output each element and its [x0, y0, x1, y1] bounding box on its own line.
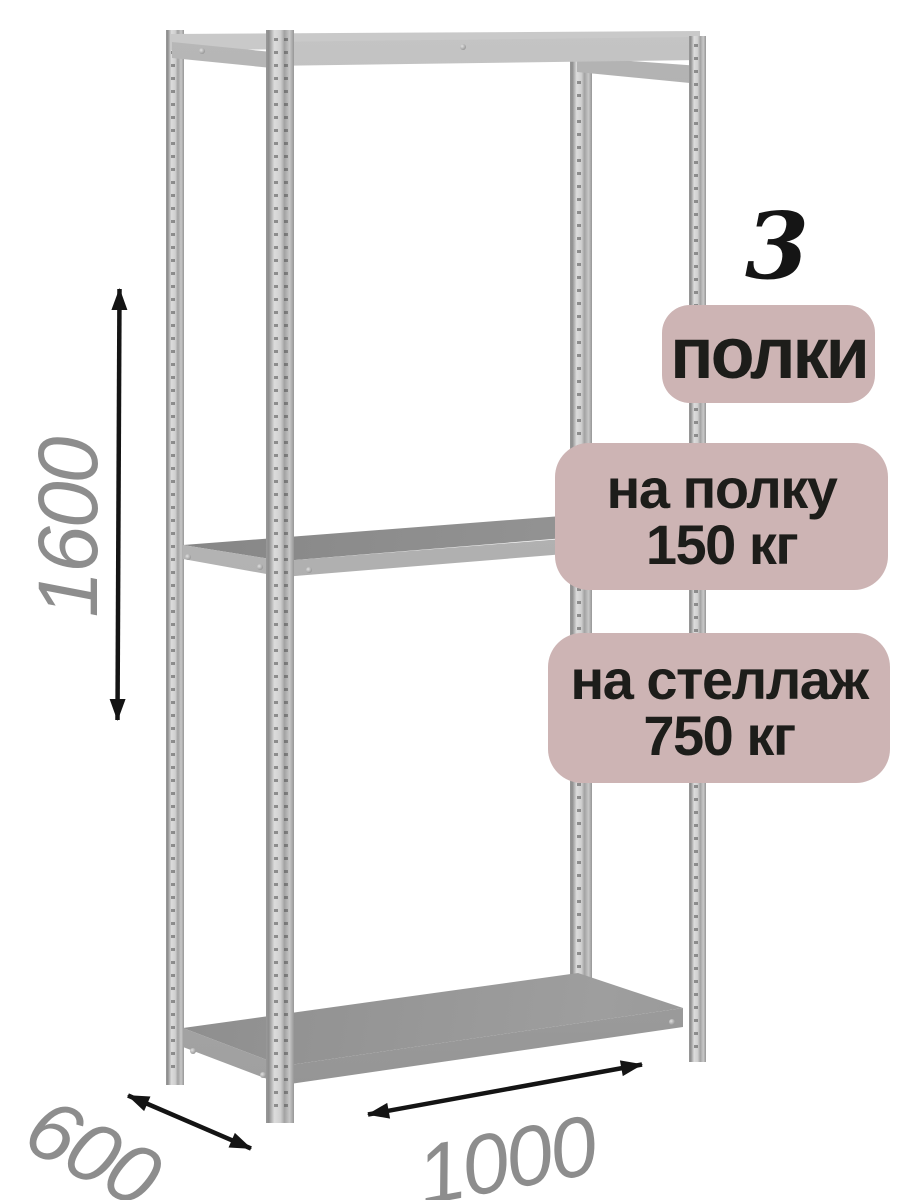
product-image: 1600 600 1000 3 полки на полку 150 кг на…	[0, 0, 900, 1200]
badge-shelf-count-label: полки	[670, 318, 867, 390]
badge-per-shelf-load-line1: на полку	[607, 461, 837, 517]
badge-per-rack-load-line2: 750 кг	[643, 708, 794, 764]
badge-per-shelf-load: на полку 150 кг	[555, 443, 888, 590]
shelf-count-number: 3	[727, 200, 827, 292]
badge-shelf-count: полки	[662, 305, 875, 403]
badge-per-shelf-load-line2: 150 кг	[646, 517, 797, 573]
height-dimension-label: 1600	[26, 378, 110, 678]
dimension-arrows	[0, 0, 900, 1200]
badge-per-rack-load: на стеллаж 750 кг	[548, 633, 890, 783]
height-arrow-icon	[118, 289, 120, 720]
badge-per-rack-load-line1: на стеллаж	[570, 652, 867, 708]
